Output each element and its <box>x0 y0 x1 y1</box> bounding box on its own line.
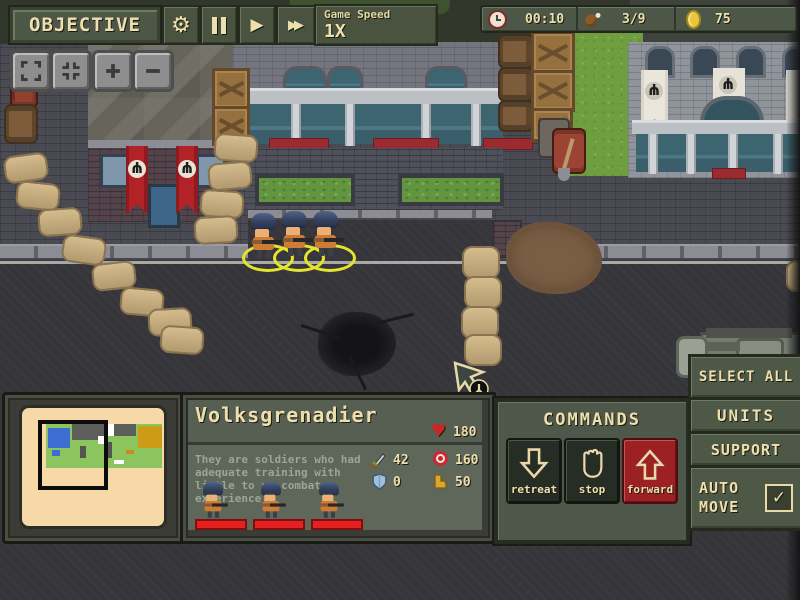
expand-icon <box>19 59 43 83</box>
range-icon <box>433 451 448 466</box>
unit-name: Volksgrenadier <box>195 403 378 427</box>
play-icon: ▶ <box>250 15 263 35</box>
faction-emblem-icon: ψ <box>178 160 196 178</box>
wooden-crate <box>531 31 575 74</box>
auto-move-label: AUTO MOVE <box>699 479 757 517</box>
faction-emblem-icon: ψ <box>645 82 663 100</box>
rations-value: 3/9 <box>622 12 645 27</box>
game-screen: ψ ψ <box>0 0 800 600</box>
zoom-out-button[interactable] <box>132 50 174 92</box>
wooden-barrel <box>4 104 38 144</box>
resource-hud: 00:10 3/9 75 <box>480 5 798 33</box>
clock-icon <box>488 10 507 29</box>
play-button[interactable]: ▶ <box>238 5 276 45</box>
hud-rations-section: 3/9 <box>578 7 676 31</box>
game-speed-value: 1X <box>324 21 346 42</box>
wooden-barrel <box>498 67 534 102</box>
pause-icon <box>221 17 226 34</box>
zoom-in-button[interactable] <box>92 50 134 92</box>
commands-panel: COMMANDS retreat stop forward <box>494 398 690 544</box>
select-all-button[interactable]: SELECT ALL <box>688 354 800 400</box>
gear-icon: ⚙ <box>171 13 191 38</box>
settings-button[interactable]: ⚙ <box>162 5 200 45</box>
center-building <box>233 42 503 210</box>
fast-forward-button[interactable]: ▶▶ <box>276 5 316 45</box>
wooden-barrel <box>498 100 534 132</box>
retreat-button[interactable]: retreat <box>506 438 562 504</box>
right-building: ψ ψ <box>628 42 800 178</box>
commands-title: COMMANDS <box>498 410 686 430</box>
expand-view-button[interactable] <box>10 50 52 92</box>
hud-coins-section: 75 <box>676 7 796 31</box>
faction-emblem-icon: ψ <box>719 76 737 94</box>
wooden-barrel <box>498 34 534 69</box>
faction-emblem-icon: ψ <box>128 160 146 178</box>
objective-button[interactable]: OBJECTIVE <box>8 5 162 45</box>
attack-value: 42 <box>393 453 409 468</box>
minimap-screen[interactable] <box>19 405 167 529</box>
minimap-panel[interactable] <box>2 392 184 544</box>
hedge-planter <box>398 174 504 206</box>
focus-icon <box>59 59 83 83</box>
red-banner: ψ <box>126 146 148 214</box>
timer-value: 00:10 <box>525 12 564 27</box>
heart-icon: ♥ <box>431 421 446 441</box>
stop-label: stop <box>579 483 606 496</box>
retreat-arrow-icon <box>517 446 551 482</box>
health-bar <box>311 519 363 530</box>
armor-value: 0 <box>393 475 401 490</box>
coins-value: 75 <box>715 12 731 27</box>
auto-move-button[interactable]: AUTO MOVE ✓ <box>688 465 800 531</box>
health-bar <box>195 519 247 530</box>
drumstick-icon <box>583 8 603 30</box>
armor-icon <box>371 473 388 490</box>
forward-arrow-icon <box>633 446 667 482</box>
range-value: 160 <box>455 453 478 468</box>
speed-icon <box>431 473 448 490</box>
units-button[interactable]: UNITS <box>688 397 800 434</box>
pause-icon <box>212 17 217 34</box>
hedge-planter <box>255 174 355 206</box>
fast-forward-icon: ▶▶ <box>288 18 304 33</box>
unit-health: 180 <box>453 425 476 440</box>
zoom-out-icon <box>141 59 165 83</box>
wooden-crate <box>531 70 575 112</box>
unit-volksgrenadier[interactable] <box>308 210 352 266</box>
minimap-viewport[interactable] <box>38 420 108 490</box>
dirt-patch <box>506 222 602 294</box>
door <box>148 184 180 228</box>
pause-button[interactable] <box>200 5 238 45</box>
zoom-in-icon <box>101 59 125 83</box>
forward-button[interactable]: forward <box>622 438 678 504</box>
attack-icon <box>371 451 388 468</box>
center-view-button[interactable] <box>50 50 92 92</box>
forward-label: forward <box>627 483 673 496</box>
red-carpet <box>712 168 746 179</box>
health-bar <box>253 519 305 530</box>
coin-icon <box>686 10 701 29</box>
red-banner: ψ <box>176 146 198 214</box>
unit-info-panel: Volksgrenadier ♥ 180 They are soldiers w… <box>180 392 496 544</box>
wooden-crate <box>212 68 250 110</box>
game-speed-panel: Game Speed 1X <box>314 4 438 46</box>
shovel-blade <box>558 168 570 181</box>
hud-time-section: 00:10 <box>482 7 578 31</box>
stop-hand-icon <box>575 446 609 482</box>
speed-value: 50 <box>455 475 471 490</box>
white-banner: ψ <box>641 70 668 126</box>
retreat-label: retreat <box>511 483 557 496</box>
game-speed-label: Game Speed <box>324 8 390 21</box>
check-icon: ✓ <box>772 488 786 508</box>
window <box>100 154 130 188</box>
support-button[interactable]: SUPPORT <box>688 431 800 468</box>
auto-move-checkbox[interactable]: ✓ <box>765 484 793 512</box>
stop-button[interactable]: stop <box>564 438 620 504</box>
